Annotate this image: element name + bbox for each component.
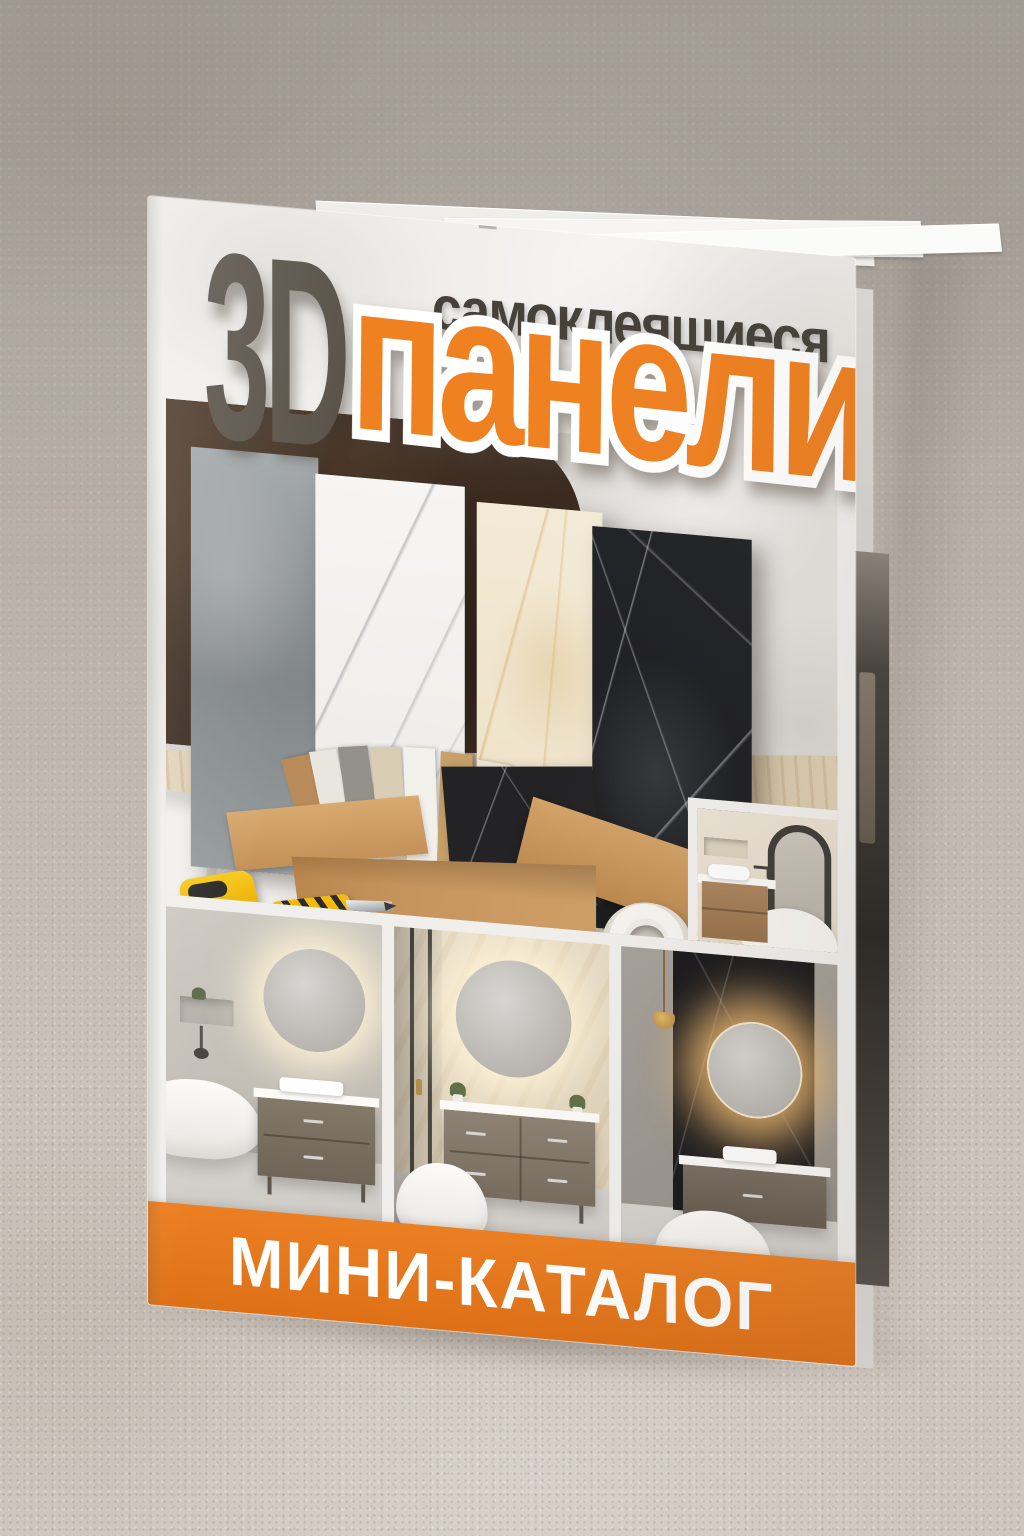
photo-scene: 3D самоклеящиеся панели (0, 0, 1024, 1536)
round-backlit-mirror (264, 945, 366, 1056)
drawer-handle (547, 1179, 567, 1184)
wall-niche (180, 996, 234, 1027)
vanity-cabinet (258, 1097, 376, 1186)
freestanding-bathtub (166, 1074, 262, 1164)
staple (479, 225, 497, 230)
drawer-handle (547, 1138, 567, 1143)
title-paneli-fill: панели (349, 248, 855, 516)
wall-faucet (754, 865, 770, 869)
vanity-leg (361, 1184, 365, 1202)
shower-handle (416, 1079, 422, 1096)
potted-plant (450, 1082, 466, 1097)
wall-niche (704, 837, 748, 859)
inset-photo-beige-bathroom (688, 797, 837, 953)
wood-vanity (702, 881, 768, 943)
title-3d: 3D (204, 213, 345, 490)
drawer-handle (465, 1131, 485, 1136)
drawer-line (264, 1134, 370, 1145)
drawer-divider (519, 1118, 521, 1202)
drawer-handle (743, 1194, 763, 1199)
inner-page-dark (851, 551, 889, 1287)
drawer-handle (303, 1155, 323, 1160)
catalog-front-cover: 3D самоклеящиеся панели (148, 196, 855, 1366)
vanity-leg (579, 1205, 583, 1223)
niche-plant (192, 987, 206, 1000)
drawer-handle (303, 1119, 323, 1124)
catalog-booklet: 3D самоклеящиеся панели (148, 196, 855, 1366)
vanity-leg (268, 1176, 272, 1194)
round-backlit-mirror (455, 956, 571, 1083)
wall-sconce (200, 1026, 203, 1050)
brass-pendant-lamp (663, 950, 665, 1016)
spine-shadow (148, 196, 162, 1305)
potted-plant (569, 1094, 585, 1109)
